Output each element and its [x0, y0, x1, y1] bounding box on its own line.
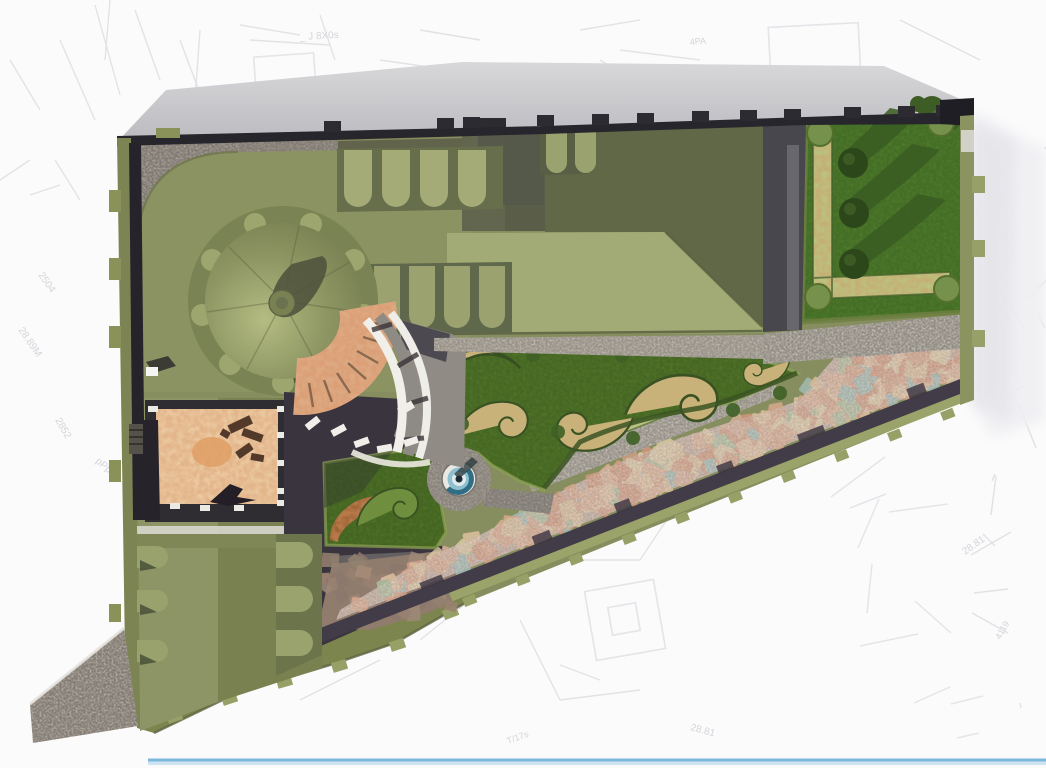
svg-text:_ J 8X0s: _ J 8X0s	[299, 30, 339, 43]
svg-text:4PA: 4PA	[689, 36, 706, 47]
